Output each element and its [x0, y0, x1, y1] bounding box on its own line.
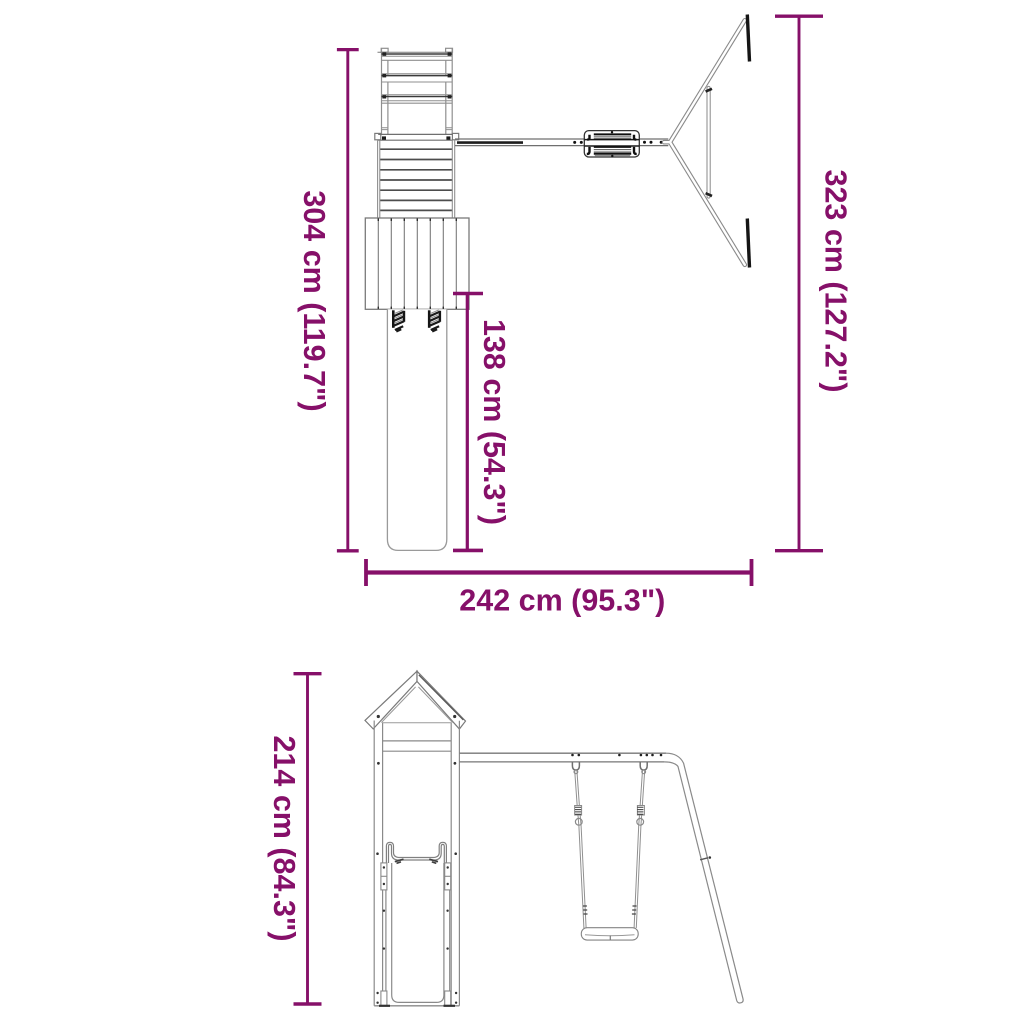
svg-text:304 cm (119.7"): 304 cm (119.7"): [297, 190, 331, 411]
svg-text:138 cm (54.3"): 138 cm (54.3"): [477, 319, 511, 525]
svg-text:242 cm (95.3"): 242 cm (95.3"): [459, 583, 665, 617]
svg-text:323 cm (127.2"): 323 cm (127.2"): [819, 169, 853, 392]
svg-text:214 cm (84.3"): 214 cm (84.3"): [267, 735, 301, 941]
